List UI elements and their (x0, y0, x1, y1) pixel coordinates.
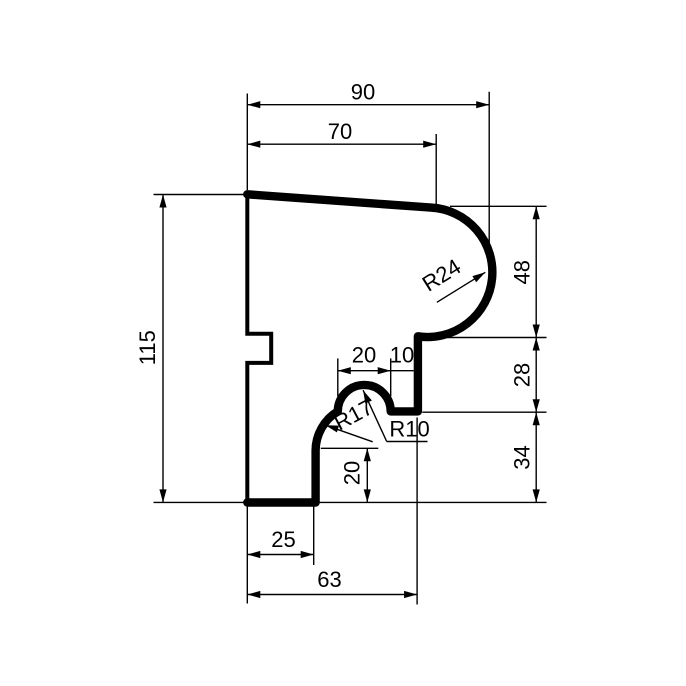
svg-text:48: 48 (510, 260, 535, 284)
svg-text:20: 20 (352, 343, 376, 368)
svg-text:10: 10 (390, 343, 414, 368)
svg-text:34: 34 (510, 445, 535, 469)
svg-text:R10: R10 (389, 417, 429, 442)
svg-text:25: 25 (271, 527, 295, 552)
svg-text:20: 20 (339, 461, 364, 485)
svg-text:28: 28 (510, 363, 535, 387)
svg-text:90: 90 (351, 80, 375, 105)
svg-text:63: 63 (317, 567, 341, 592)
svg-text:70: 70 (328, 119, 352, 144)
svg-text:115: 115 (135, 330, 160, 365)
